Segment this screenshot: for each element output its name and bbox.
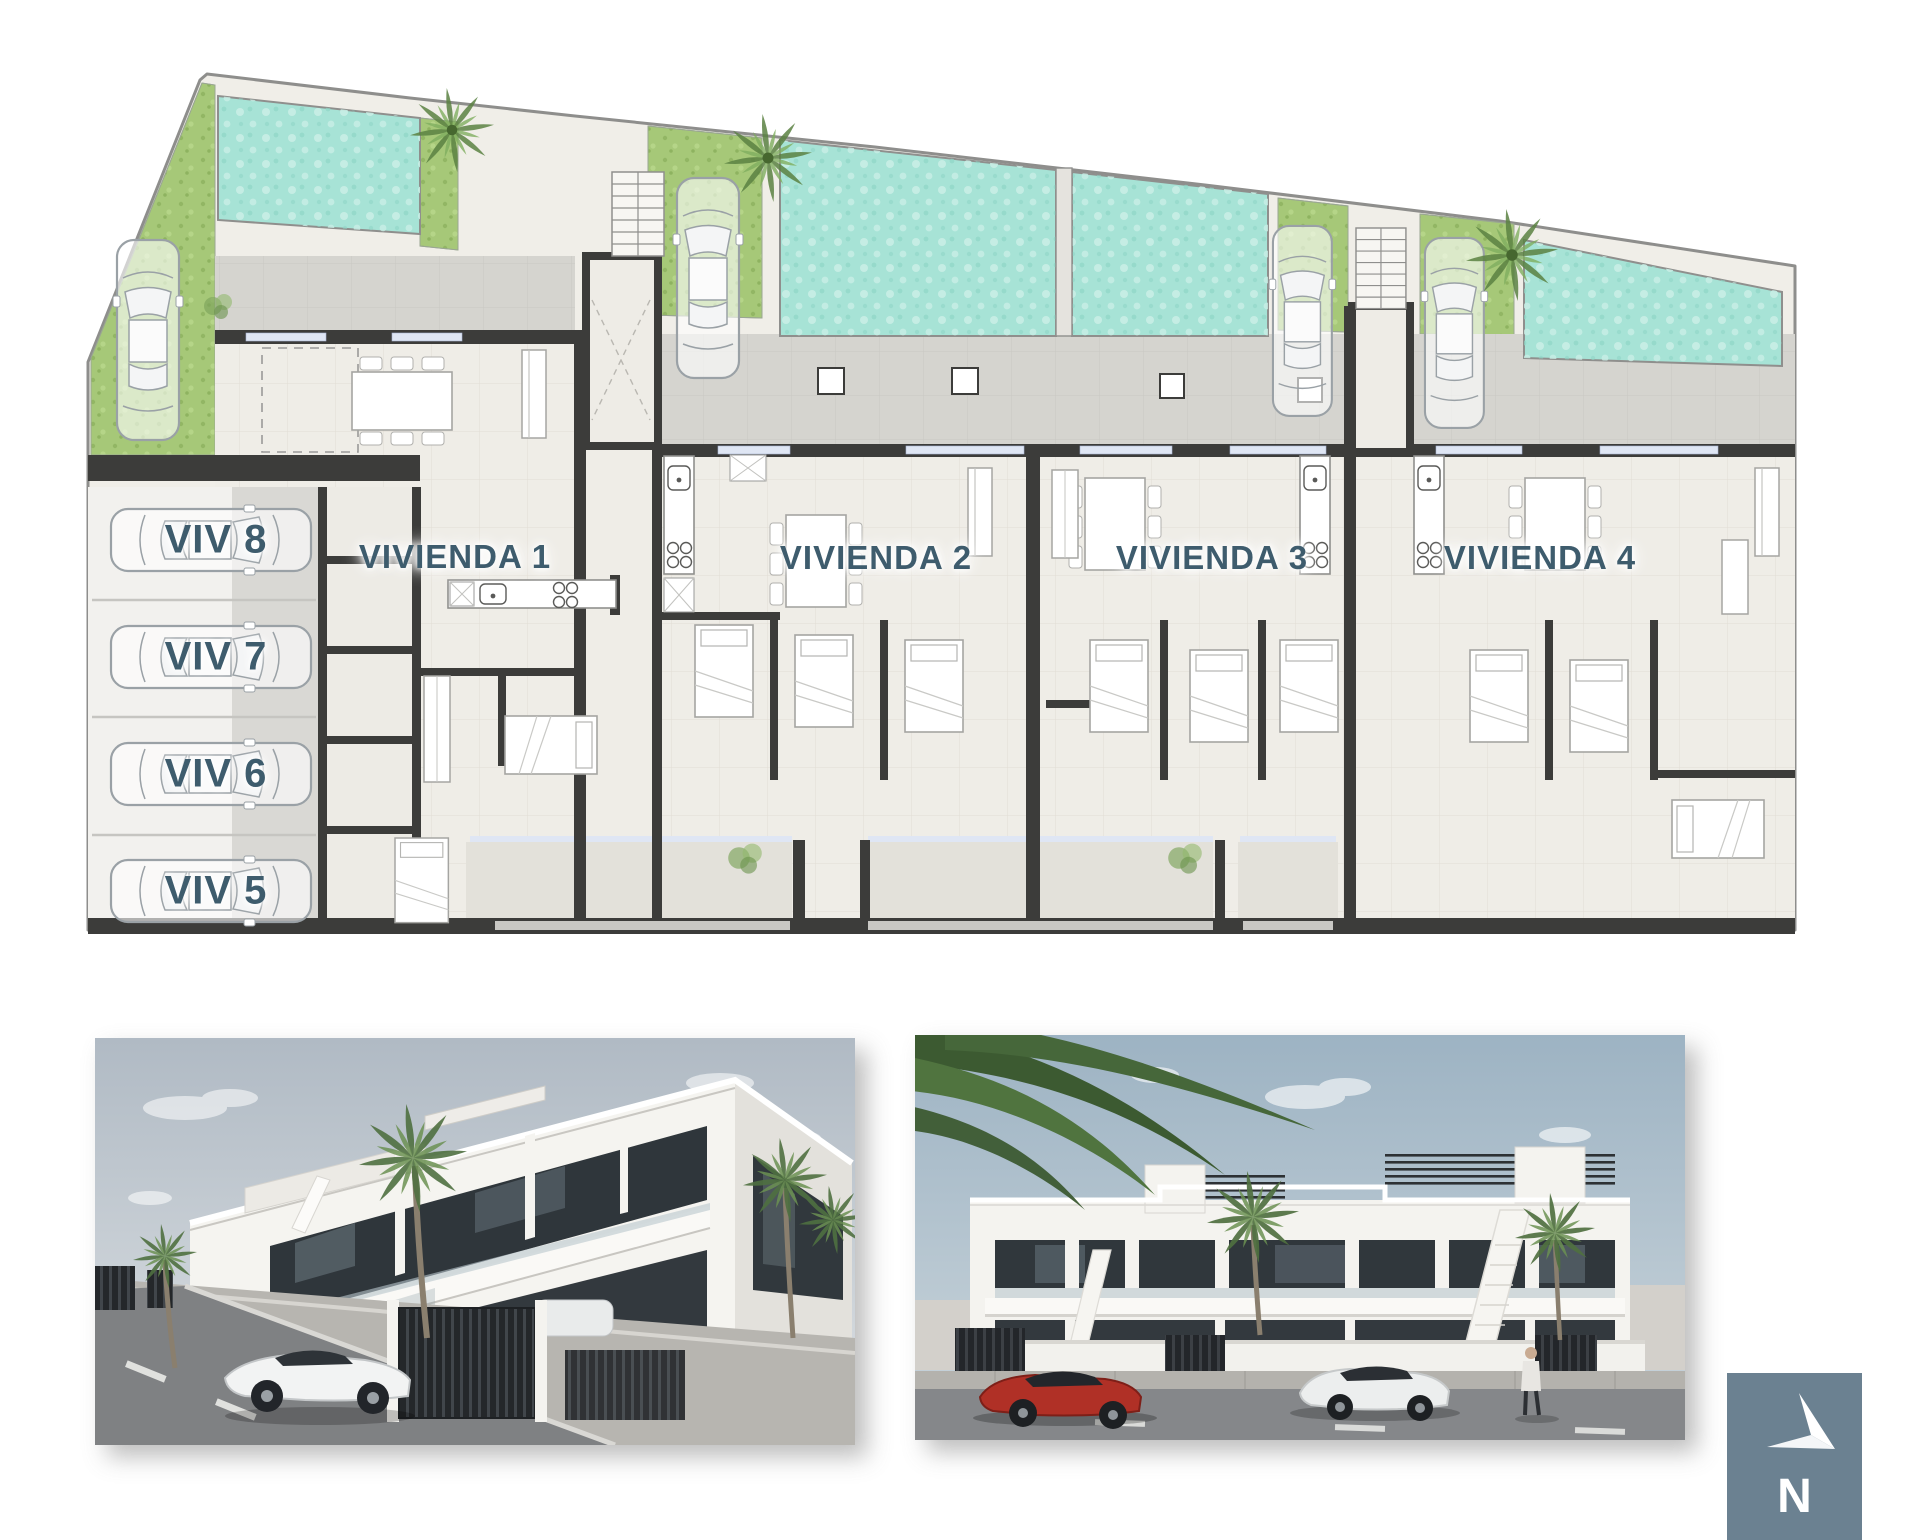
parking-label-viv-7: VIV 7 <box>165 635 268 680</box>
page: VIVIENDA 1 VIVIENDA 2 VIVIENDA 3 VIVIEND… <box>0 0 1920 1540</box>
car-icon <box>113 240 183 440</box>
unit-label-vivienda-2: VIVIENDA 2 <box>780 539 972 577</box>
north-compass: N <box>1727 1373 1862 1540</box>
dark-slat-gate <box>399 1308 535 1418</box>
car-icon <box>1269 226 1336 416</box>
compass-north-label: N <box>1727 1469 1862 1524</box>
car-icon <box>673 178 743 378</box>
bottom-terraces <box>466 836 1338 918</box>
terrace-pillar <box>818 368 844 394</box>
terrace-pillar <box>1160 374 1184 398</box>
stairs-icon <box>1356 228 1406 309</box>
pool-divider-wall <box>1056 168 1072 336</box>
parking-label-viv-6: VIV 6 <box>165 752 268 797</box>
unit-label-vivienda-3: VIVIENDA 3 <box>1116 539 1308 577</box>
unit-label-vivienda-4: VIVIENDA 4 <box>1444 539 1636 577</box>
unit-label-vivienda-1: VIVIENDA 1 <box>359 538 551 576</box>
parking-label-viv-5: VIV 5 <box>165 869 268 914</box>
terrace-pillar <box>952 368 978 394</box>
stair-core-2 <box>1352 228 1410 452</box>
terrace-glazing <box>470 836 792 842</box>
floor-plan-drawing <box>0 0 1920 985</box>
exterior-render-corner <box>95 1038 855 1445</box>
stairs-icon <box>612 172 664 256</box>
exterior-render-front <box>915 1035 1685 1440</box>
car-icon <box>1421 238 1488 428</box>
parking-label-viv-8: VIV 8 <box>165 518 268 563</box>
